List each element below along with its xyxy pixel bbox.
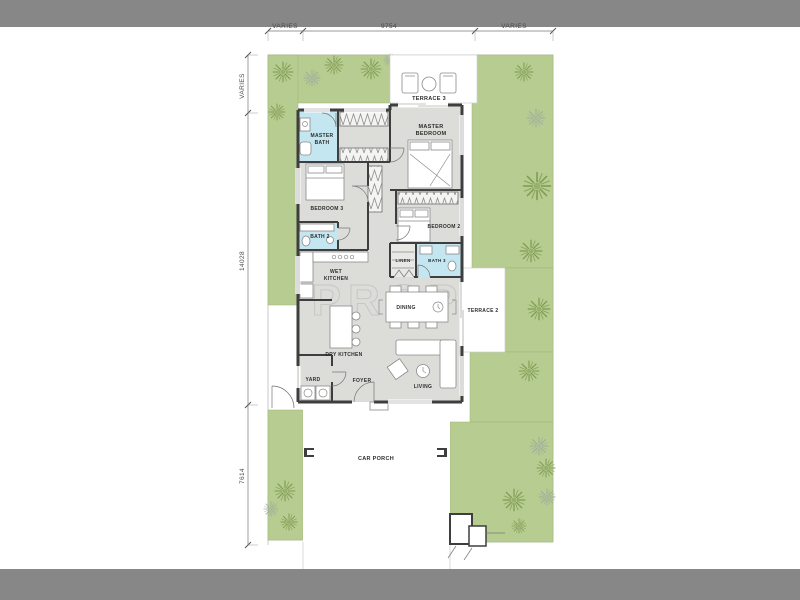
wet-kitchen-label2: KITCHEN xyxy=(324,276,348,282)
tree-icon xyxy=(530,437,548,455)
master-bath-label: MASTER xyxy=(311,133,334,139)
window xyxy=(460,198,465,236)
yard-side-door xyxy=(296,366,301,388)
car-porch-area xyxy=(303,403,450,569)
tree-icon xyxy=(304,70,320,86)
master-bedroom-label: MASTER xyxy=(418,124,443,130)
bath2-label: BATH 2 xyxy=(310,234,330,240)
living-label: LIVING xyxy=(414,384,432,390)
sliding-door xyxy=(460,282,465,346)
tree-icon xyxy=(325,56,343,74)
tree-icon xyxy=(539,489,555,505)
dim-left-mid: 14028 xyxy=(239,251,246,271)
tree-icon xyxy=(361,59,381,79)
car-porch-label: CAR PORCH xyxy=(358,456,394,462)
dry-kitchen-label: DRY KITCHEN xyxy=(325,352,362,358)
tree-icon xyxy=(515,63,533,81)
bottom-letterbox-bar xyxy=(0,569,800,600)
tree-icon xyxy=(269,104,285,120)
window xyxy=(460,356,465,396)
bedroom3-bed xyxy=(306,164,344,200)
bedroom2-label: BEDROOM 2 xyxy=(428,224,461,230)
yard-label: YARD xyxy=(306,377,321,383)
dim-top-left: VARIES xyxy=(272,23,298,30)
tree-icon xyxy=(520,240,542,262)
window xyxy=(304,108,330,113)
window xyxy=(460,115,465,155)
tree-icon xyxy=(281,514,297,530)
dim-top-mid: 9754 xyxy=(381,23,397,30)
window xyxy=(388,400,432,405)
window xyxy=(398,103,448,108)
linen-label: LINEN xyxy=(396,258,411,263)
terrace2-label: TERRACE 2 xyxy=(467,308,498,314)
window xyxy=(296,168,301,204)
tree-icon xyxy=(264,502,278,516)
dim-left-top: VARIES xyxy=(239,73,246,99)
master-bath-label2: BATH xyxy=(315,140,330,146)
side-gate-door xyxy=(272,386,294,408)
terrace3-label: TERRACE 3 xyxy=(412,96,446,102)
bedroom2-bed xyxy=(398,208,430,242)
floor-plan-drawing: PROP xyxy=(0,0,800,600)
floor-plan-page: PROP xyxy=(0,0,800,600)
tree-icon xyxy=(519,361,539,381)
tree-icon xyxy=(528,298,550,320)
dim-left-bottom: 7614 xyxy=(239,468,246,484)
tree-icon xyxy=(537,459,555,477)
tree-icon xyxy=(527,109,545,127)
wet-kitchen-label: WET xyxy=(330,269,342,275)
dining-label: DINING xyxy=(396,305,415,311)
bath3-label: BATH 3 xyxy=(428,258,446,263)
tree-icon xyxy=(524,173,551,200)
window xyxy=(296,256,301,294)
window xyxy=(344,108,386,113)
dim-top-right: VARIES xyxy=(501,23,527,30)
top-letterbox-bar xyxy=(0,0,800,27)
tree-icon xyxy=(503,489,525,511)
foyer-label: FOYER xyxy=(353,378,372,384)
bedroom3-label: BEDROOM 3 xyxy=(311,206,344,212)
master-bed xyxy=(408,140,452,188)
dining-set xyxy=(379,286,456,328)
master-bedroom-label2: BEDROOM xyxy=(416,131,447,137)
tree-icon xyxy=(275,481,295,501)
tree-icon xyxy=(512,519,526,533)
dry-kitchen-island xyxy=(330,306,360,348)
tree-icon xyxy=(273,62,293,82)
